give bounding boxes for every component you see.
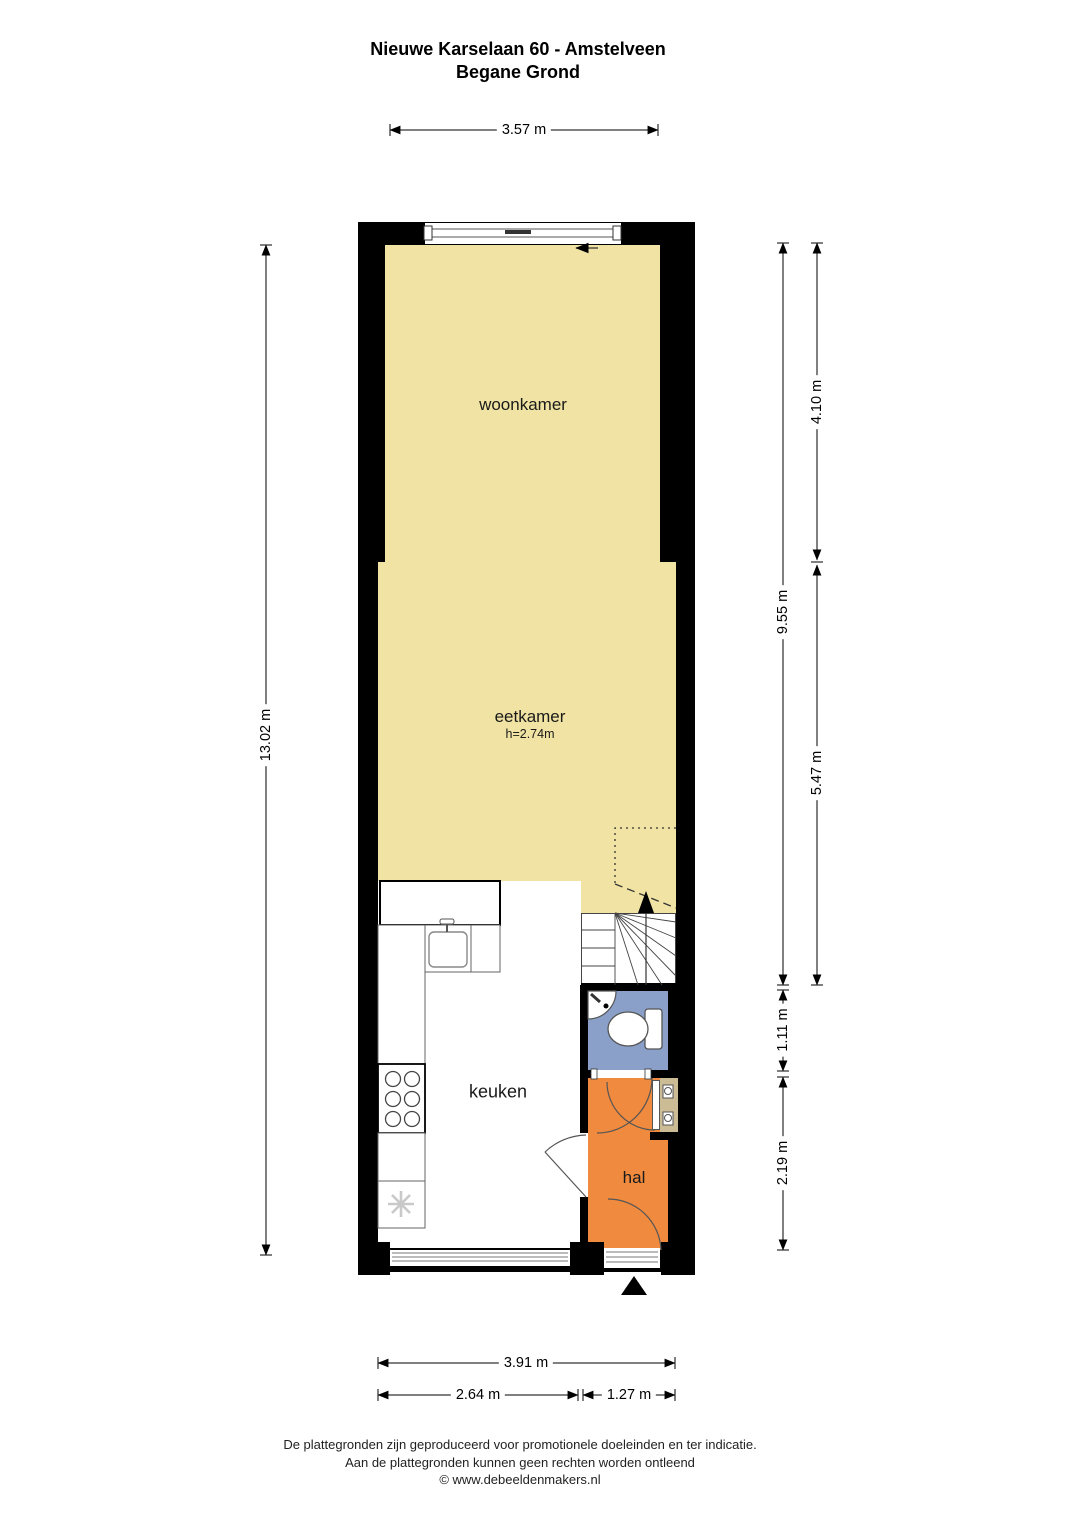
keuken-door [545,1135,586,1197]
toilet-door-arc-visible [597,1078,652,1133]
window-post-left [424,226,432,240]
window-post-right [613,226,621,240]
dim-bottom-inner-width: 3.91 m [499,1355,553,1371]
window-slider-handle [505,230,531,234]
dim-right-toilet-depth: 1.11 m [775,1003,791,1056]
stairs-walk-line-arrow-icon [638,891,654,985]
dim-left-total-height: 13.02 m [258,704,274,766]
counter-below-stove [378,1133,425,1181]
corner-basin-icon [588,991,616,1019]
stairs [581,913,676,985]
meter-icons [663,1085,673,1125]
dim-bottom-hal-width: 1.27 m [602,1387,656,1403]
front-door-arc [608,1199,661,1250]
dim-right-hal-depth: 2.19 m [775,1136,791,1190]
stove-icon [378,1064,425,1133]
dim-right-woonkamer-depth: 4.10 m [809,375,825,429]
appliance-icon [378,1181,425,1228]
counter-left-column [378,925,425,1064]
dim-top-width: 3.57 m [497,122,551,138]
plan-linework [0,0,1080,1527]
toilet-icon [608,1009,662,1049]
dim-right-inner-height: 9.55 m [775,585,791,639]
toilet-door-frame [591,1069,651,1079]
entrance-arrow-icon [621,1276,647,1295]
window-keuken-glazing [392,1253,568,1261]
counter-top-block [380,881,500,925]
dim-bottom-keuken-width: 2.64 m [451,1387,505,1403]
floorplan-page: Nieuwe Karselaan 60 - Amstelveen Begane … [0,0,1080,1527]
meterkast-door-arc [607,1082,655,1130]
dimension-lines [260,124,823,1401]
front-door-leaf [606,1252,658,1262]
dim-right-eetkamer-depth: 5.47 m [809,746,825,800]
